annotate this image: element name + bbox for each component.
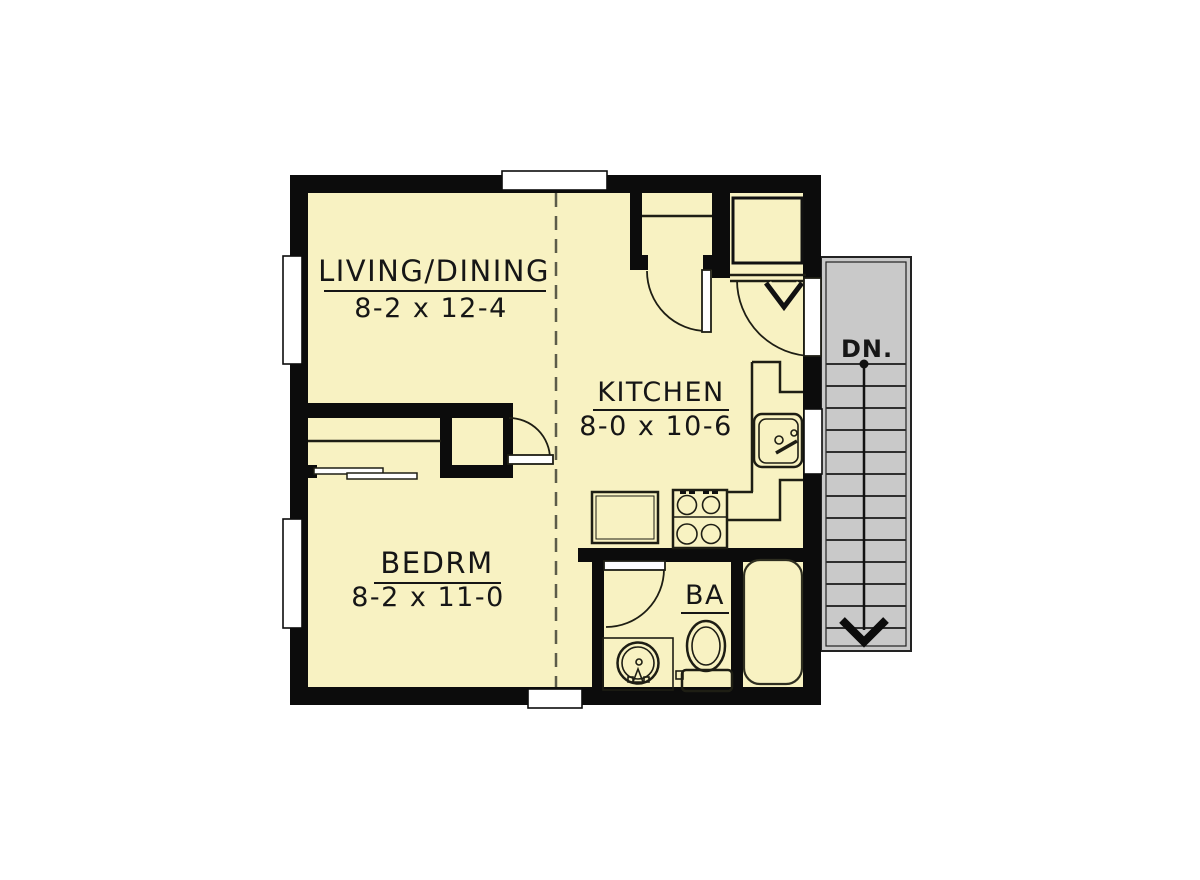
top-window	[502, 171, 607, 190]
closet-rod-slab-2	[347, 473, 417, 479]
stairwell: DN.	[821, 257, 911, 651]
floor-plan-image: DN.	[0, 0, 1200, 880]
left-window-upper	[283, 256, 302, 364]
left-window-lower	[283, 519, 302, 628]
living-dining-label: LIVING/DINING	[318, 254, 550, 288]
wall-tub-divider	[731, 562, 743, 687]
bathroom-door-leaf	[604, 561, 665, 570]
kitchen-right-window	[804, 409, 822, 474]
wall-entry-closet-right-foot	[703, 255, 712, 270]
bedroom-label: BEDRM	[380, 546, 493, 580]
stove-knob-2	[689, 491, 695, 494]
wall-entry-closet-right	[712, 193, 730, 278]
bathtub	[744, 560, 802, 684]
unit-entry-door-leaf	[804, 278, 821, 356]
wall-bedroom-partition	[308, 403, 513, 418]
entry-closet-door-leaf	[702, 270, 711, 332]
bedroom-door-leaf	[508, 455, 553, 464]
stairwell-outline	[821, 257, 911, 651]
bedroom-dimensions: 8-2 x 11-0	[351, 582, 505, 613]
bathroom-label: BA	[685, 580, 725, 611]
wall-entry-closet-left-foot	[630, 255, 648, 270]
floor-plan-svg: DN.	[0, 0, 1200, 880]
stairs-down-label: DN.	[841, 335, 893, 363]
stove-knob-3	[703, 491, 709, 494]
bottom-window	[528, 689, 582, 708]
stove-knob-4	[712, 491, 718, 494]
stove-knob-1	[680, 491, 686, 494]
water-heater	[733, 198, 802, 263]
kitchen-dimensions: 8-0 x 10-6	[579, 411, 733, 442]
kitchen-label: KITCHEN	[597, 377, 725, 408]
living-dining-dimensions: 8-2 x 12-4	[354, 293, 508, 324]
wall-closet-bottom	[440, 465, 513, 478]
